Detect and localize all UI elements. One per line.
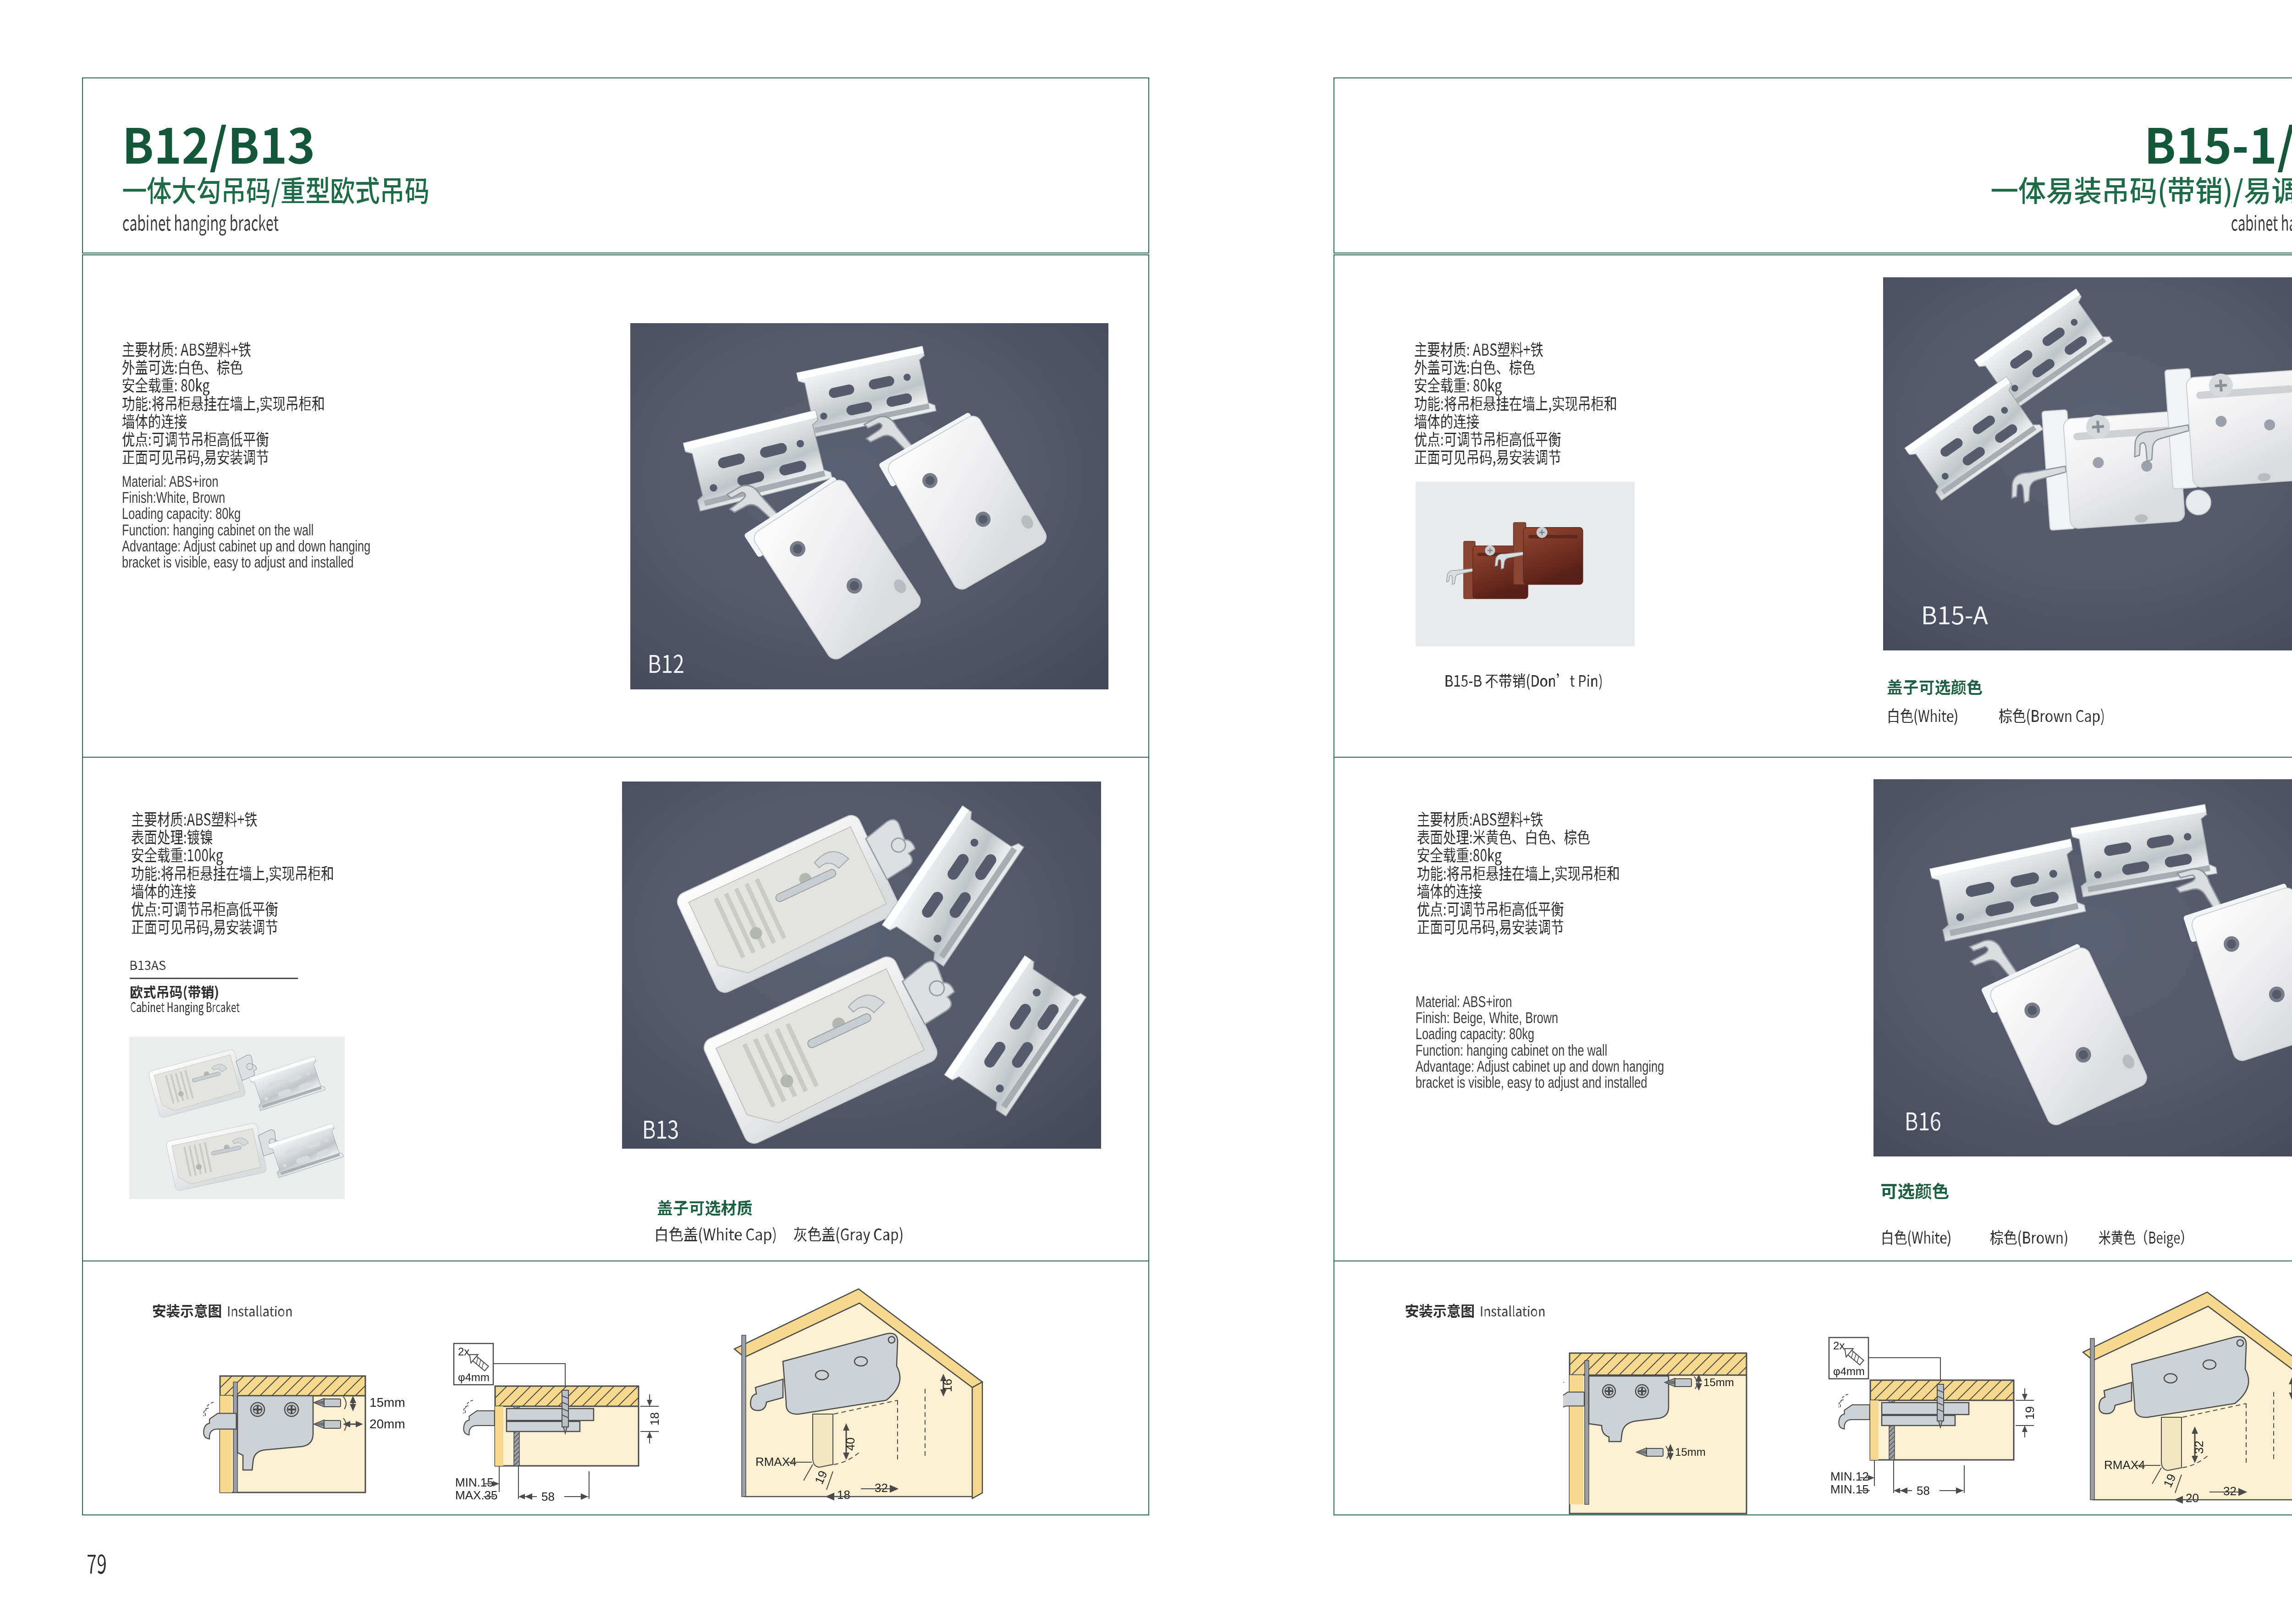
svg-text:20: 20	[2186, 1491, 2199, 1505]
svg-text:15mm: 15mm	[369, 1395, 405, 1409]
svg-text:15mm: 15mm	[1703, 1376, 1734, 1389]
svg-text:30: 30	[2289, 1382, 2292, 1395]
svg-text:19: 19	[2023, 1406, 2037, 1420]
svg-text:18: 18	[837, 1488, 850, 1502]
svg-text:MIN.15: MIN.15	[455, 1475, 494, 1489]
svg-text:58: 58	[1917, 1484, 1930, 1497]
svg-text:15mm: 15mm	[1675, 1446, 1706, 1459]
svg-text:φ4mm: φ4mm	[1833, 1365, 1865, 1378]
svg-text:32: 32	[875, 1481, 888, 1495]
svg-text:2x: 2x	[458, 1346, 469, 1358]
svg-text:32: 32	[2192, 1441, 2206, 1454]
svg-text:2x: 2x	[1833, 1340, 1845, 1352]
svg-text:φ4mm: φ4mm	[458, 1371, 490, 1384]
svg-text:58: 58	[541, 1490, 555, 1503]
svg-text:MIN.12: MIN.12	[1830, 1470, 1869, 1483]
svg-text:40: 40	[843, 1437, 857, 1451]
svg-text:18: 18	[648, 1412, 661, 1426]
svg-text:20mm: 20mm	[369, 1417, 405, 1431]
svg-text:MIN.15: MIN.15	[1830, 1482, 1869, 1496]
svg-text:32: 32	[2223, 1484, 2237, 1498]
svg-text:16: 16	[941, 1379, 954, 1392]
svg-text:MAX.35: MAX.35	[455, 1488, 498, 1502]
